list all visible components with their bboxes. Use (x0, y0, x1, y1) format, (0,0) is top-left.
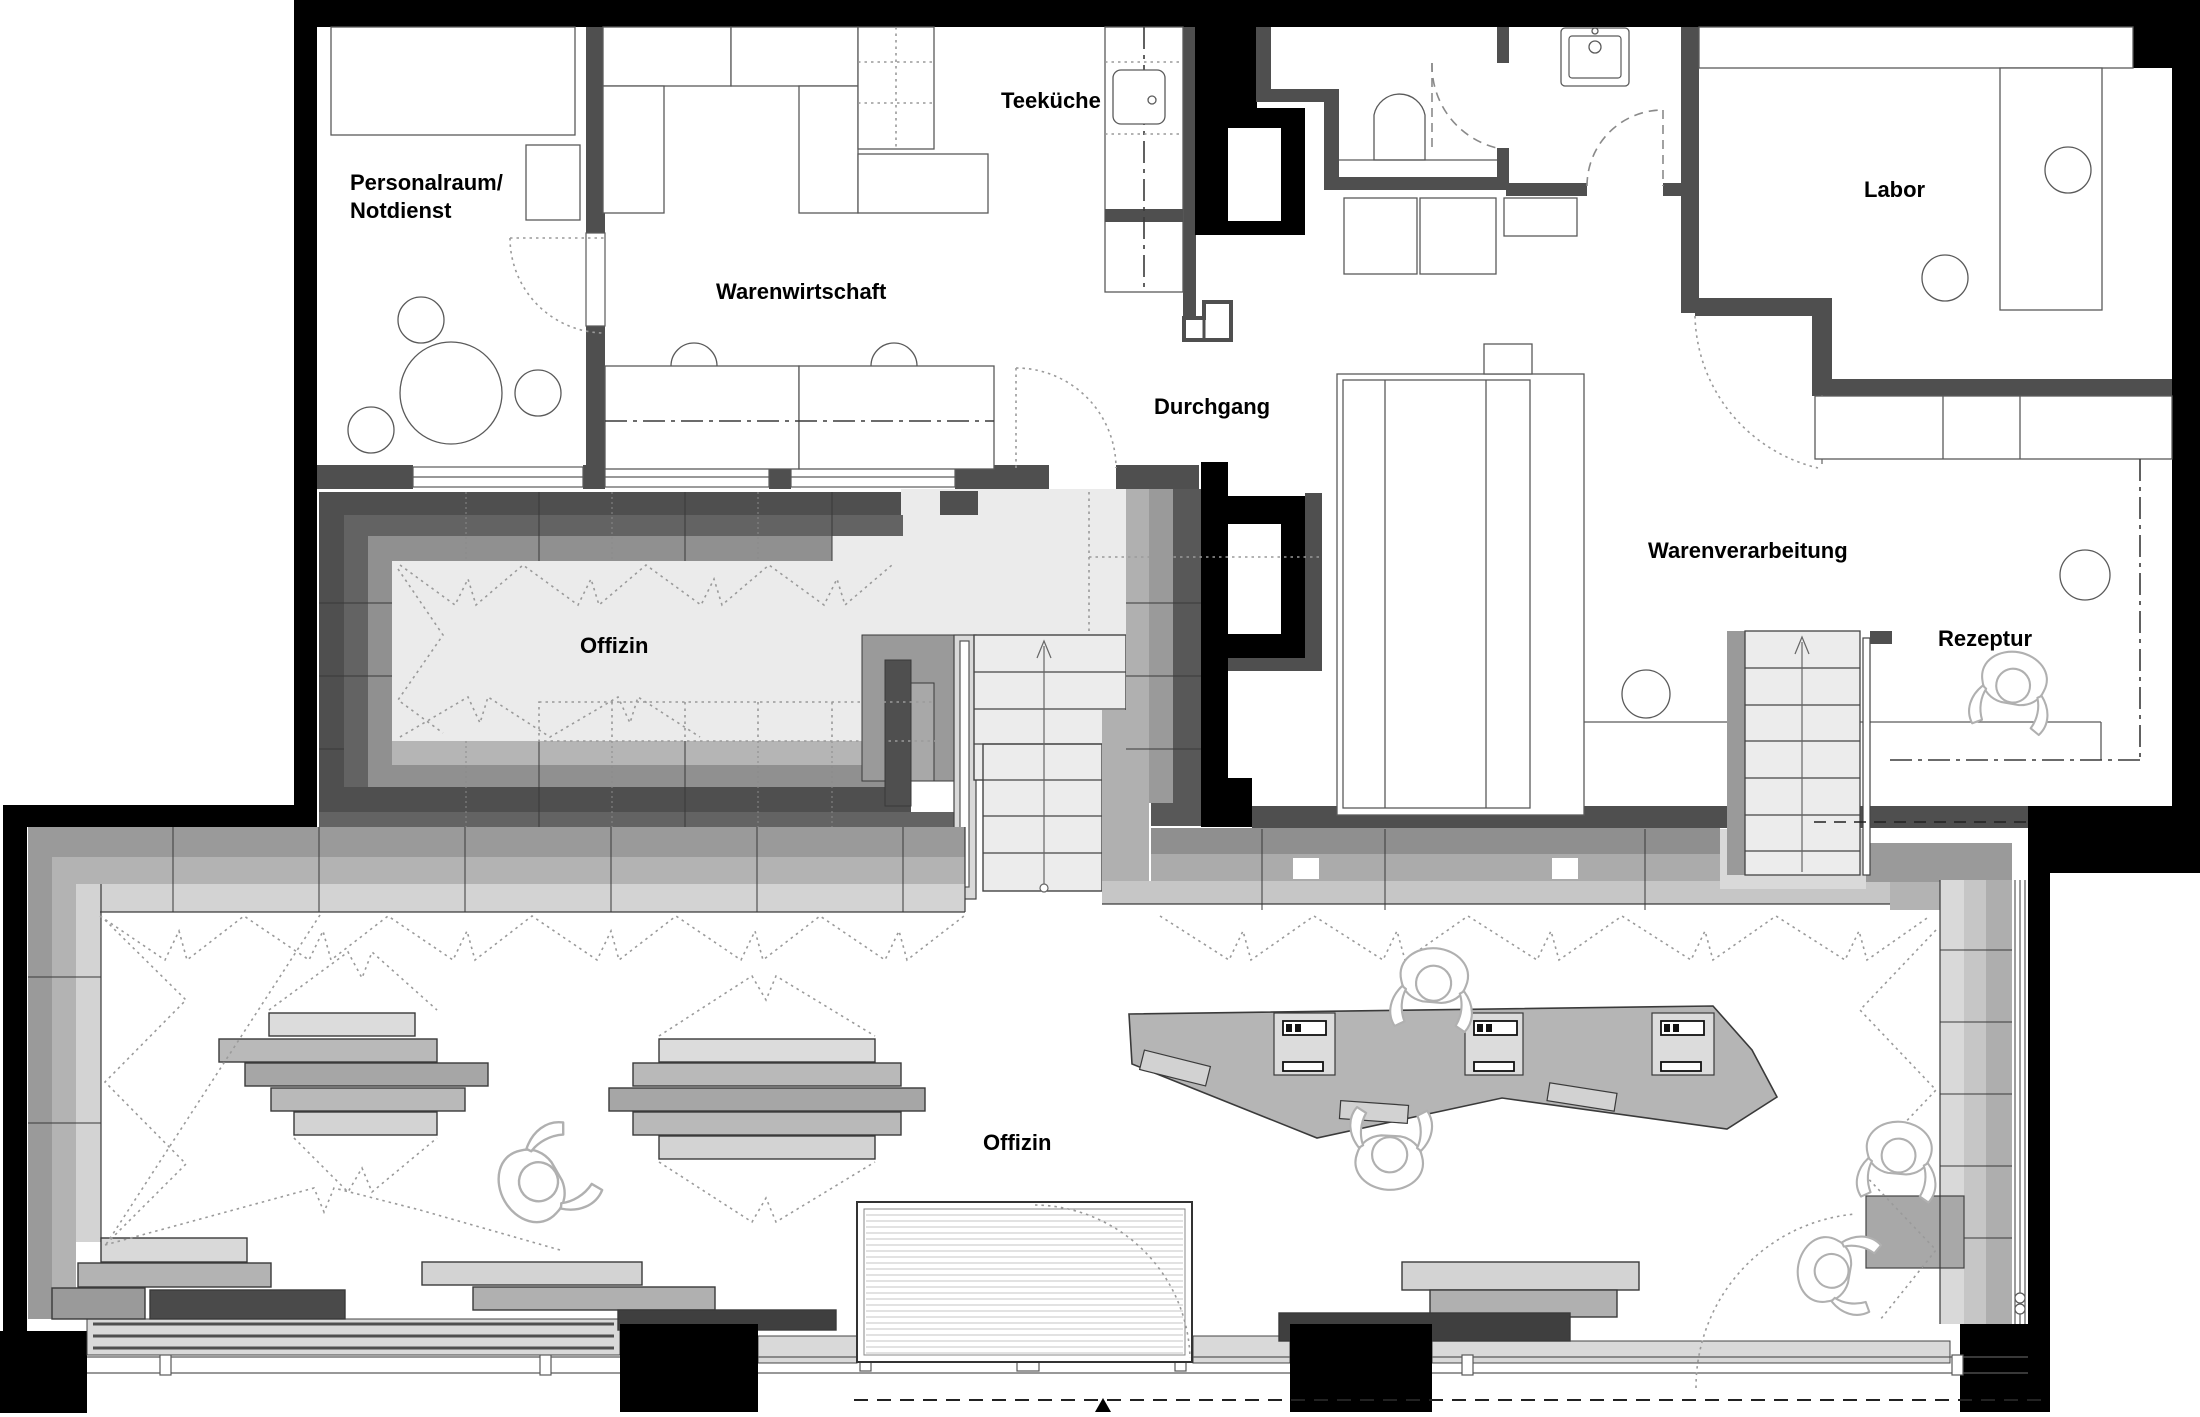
svg-text:Offizin: Offizin (580, 633, 648, 658)
svg-text:Warenverarbeitung: Warenverarbeitung (1648, 538, 1848, 563)
svg-text:Notdienst: Notdienst (350, 198, 452, 223)
svg-text:Labor: Labor (1864, 177, 1926, 202)
svg-text:Warenwirtschaft: Warenwirtschaft (716, 279, 887, 304)
svg-text:Offizin: Offizin (983, 1130, 1051, 1155)
svg-text:Teeküche: Teeküche (1001, 88, 1101, 113)
svg-text:Rezeptur: Rezeptur (1938, 626, 2033, 651)
svg-text:Personalraum/: Personalraum/ (350, 170, 503, 195)
svg-text:Durchgang: Durchgang (1154, 394, 1270, 419)
